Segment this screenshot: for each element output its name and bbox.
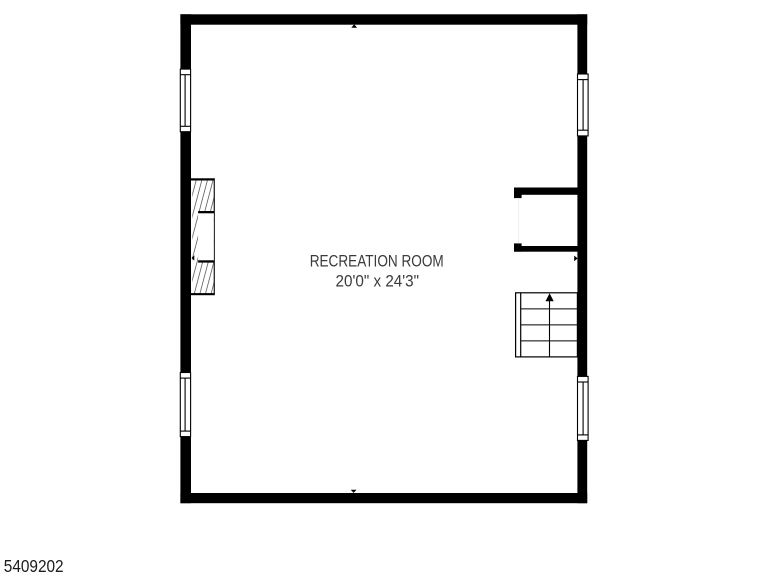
svg-text:5409202: 5409202 (4, 556, 64, 576)
svg-text:20'0" x 24'3": 20'0" x 24'3" (336, 271, 420, 290)
svg-text:RECREATION ROOM: RECREATION ROOM (310, 252, 444, 271)
